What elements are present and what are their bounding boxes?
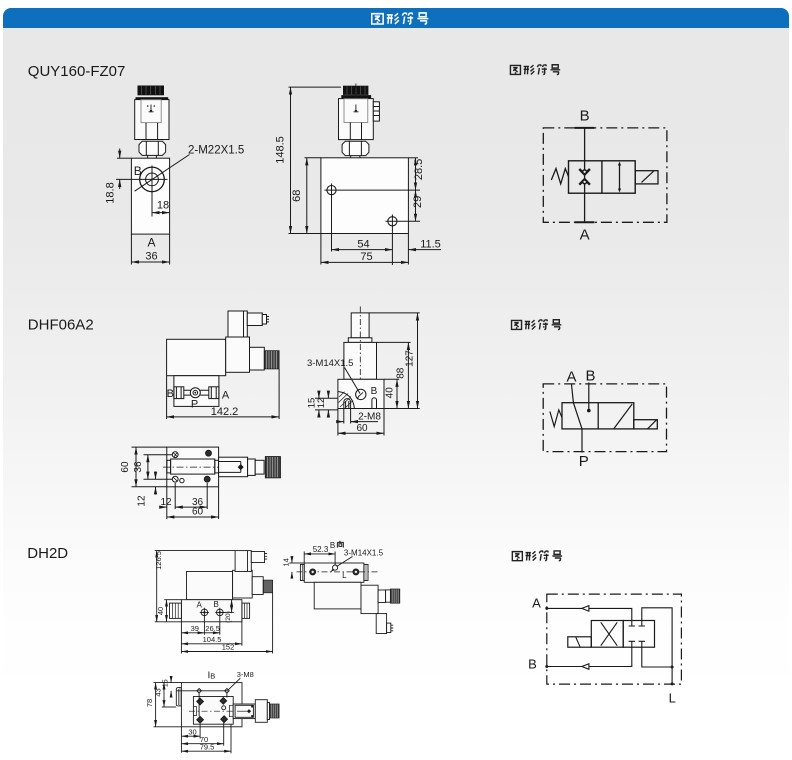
svg-text:3-M14X1.5: 3-M14X1.5 xyxy=(344,549,384,558)
svg-text:12: 12 xyxy=(137,495,148,507)
svg-text:126.5: 126.5 xyxy=(154,551,163,570)
svg-text:75: 75 xyxy=(360,251,372,263)
svg-text:DH2D: DH2D xyxy=(27,545,68,562)
svg-text:43: 43 xyxy=(153,688,162,696)
svg-text:36: 36 xyxy=(133,461,144,473)
svg-text:12: 12 xyxy=(316,398,327,409)
svg-text:2-M8: 2-M8 xyxy=(358,412,381,423)
svg-text:A: A xyxy=(222,390,230,402)
svg-text:78: 78 xyxy=(145,699,154,707)
svg-text:14: 14 xyxy=(281,558,290,566)
svg-text:B: B xyxy=(167,388,174,400)
svg-text:30: 30 xyxy=(188,727,196,736)
svg-text:3-M14X1.5: 3-M14X1.5 xyxy=(307,358,353,369)
svg-text:152: 152 xyxy=(222,643,235,652)
svg-text:68: 68 xyxy=(291,190,303,202)
svg-text:60: 60 xyxy=(356,423,368,434)
svg-text:12: 12 xyxy=(160,497,172,508)
svg-text:88: 88 xyxy=(395,367,406,379)
svg-text:P: P xyxy=(191,398,198,410)
svg-text:15: 15 xyxy=(162,679,169,687)
svg-text:60: 60 xyxy=(120,461,131,473)
svg-text:29: 29 xyxy=(412,196,424,208)
svg-text:A: A xyxy=(566,369,576,386)
svg-text:148.5: 148.5 xyxy=(275,136,287,164)
svg-text:18.8: 18.8 xyxy=(105,182,117,203)
svg-text:B: B xyxy=(330,541,335,550)
svg-text:52.3: 52.3 xyxy=(313,545,329,554)
svg-text:B: B xyxy=(580,108,590,125)
svg-text:40: 40 xyxy=(156,607,165,615)
svg-text:36: 36 xyxy=(145,251,157,263)
svg-text:L: L xyxy=(342,571,347,580)
svg-text:18: 18 xyxy=(157,200,169,212)
svg-text:104.5: 104.5 xyxy=(203,635,222,644)
svg-text:40: 40 xyxy=(384,387,395,399)
svg-text:142.2: 142.2 xyxy=(211,406,239,418)
svg-text:P: P xyxy=(579,453,589,470)
svg-text:11.5: 11.5 xyxy=(420,238,441,250)
svg-text:DHF06A2: DHF06A2 xyxy=(28,317,94,334)
svg-text:39: 39 xyxy=(191,624,199,633)
svg-text:A: A xyxy=(532,595,541,610)
svg-text:B: B xyxy=(134,164,142,178)
svg-text:A: A xyxy=(197,601,203,610)
svg-text:B: B xyxy=(214,600,219,609)
svg-text:60: 60 xyxy=(192,507,204,518)
svg-text:2-M22X1.5: 2-M22X1.5 xyxy=(188,145,244,157)
svg-text:3-M8: 3-M8 xyxy=(237,670,254,679)
svg-text:79.5: 79.5 xyxy=(200,742,215,751)
svg-text:B: B xyxy=(528,656,537,671)
svg-text:(20): (20) xyxy=(225,611,232,623)
svg-text:L: L xyxy=(669,691,676,706)
svg-text:26.5: 26.5 xyxy=(205,624,220,633)
svg-text:127: 127 xyxy=(405,350,416,367)
svg-text:B: B xyxy=(585,368,595,385)
svg-text:B: B xyxy=(210,671,215,680)
svg-text:54: 54 xyxy=(357,238,369,250)
svg-text:QUY160-FZ07: QUY160-FZ07 xyxy=(28,63,126,80)
svg-text:28.5: 28.5 xyxy=(413,159,425,180)
svg-text:B: B xyxy=(371,386,378,397)
svg-text:A: A xyxy=(147,236,155,250)
svg-text:A: A xyxy=(580,227,590,244)
